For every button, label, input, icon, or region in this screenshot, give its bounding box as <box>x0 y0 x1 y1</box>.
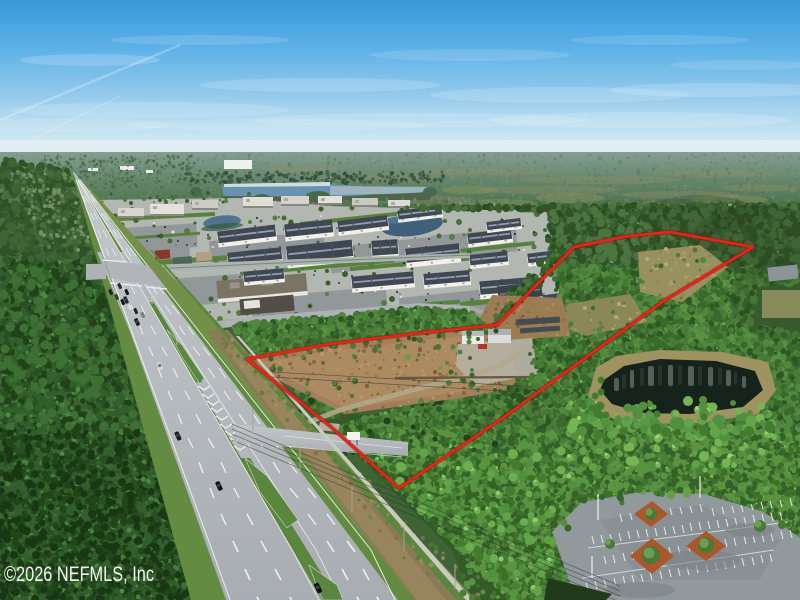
svg-text:©2026 NEFMLS, Inc: ©2026 NEFMLS, Inc <box>4 563 154 586</box>
